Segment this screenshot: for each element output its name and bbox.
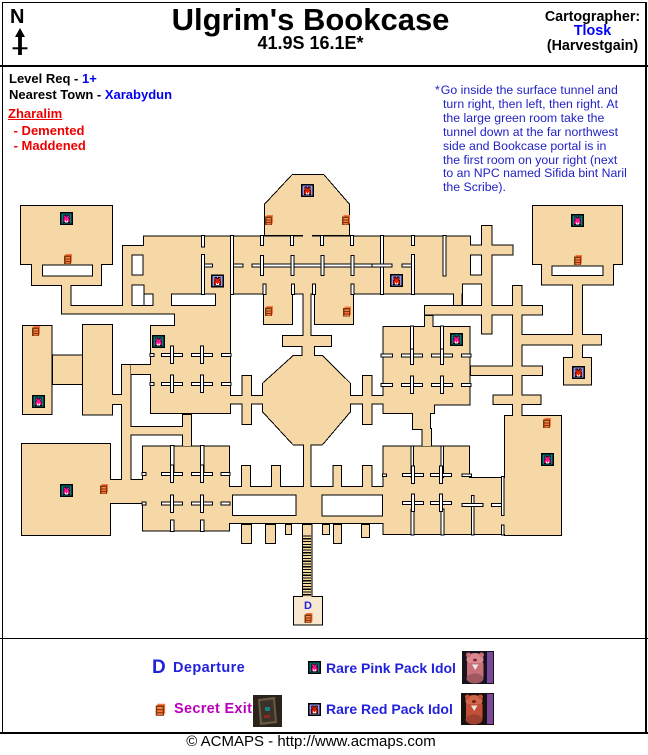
svg-text:D: D [304,600,312,612]
